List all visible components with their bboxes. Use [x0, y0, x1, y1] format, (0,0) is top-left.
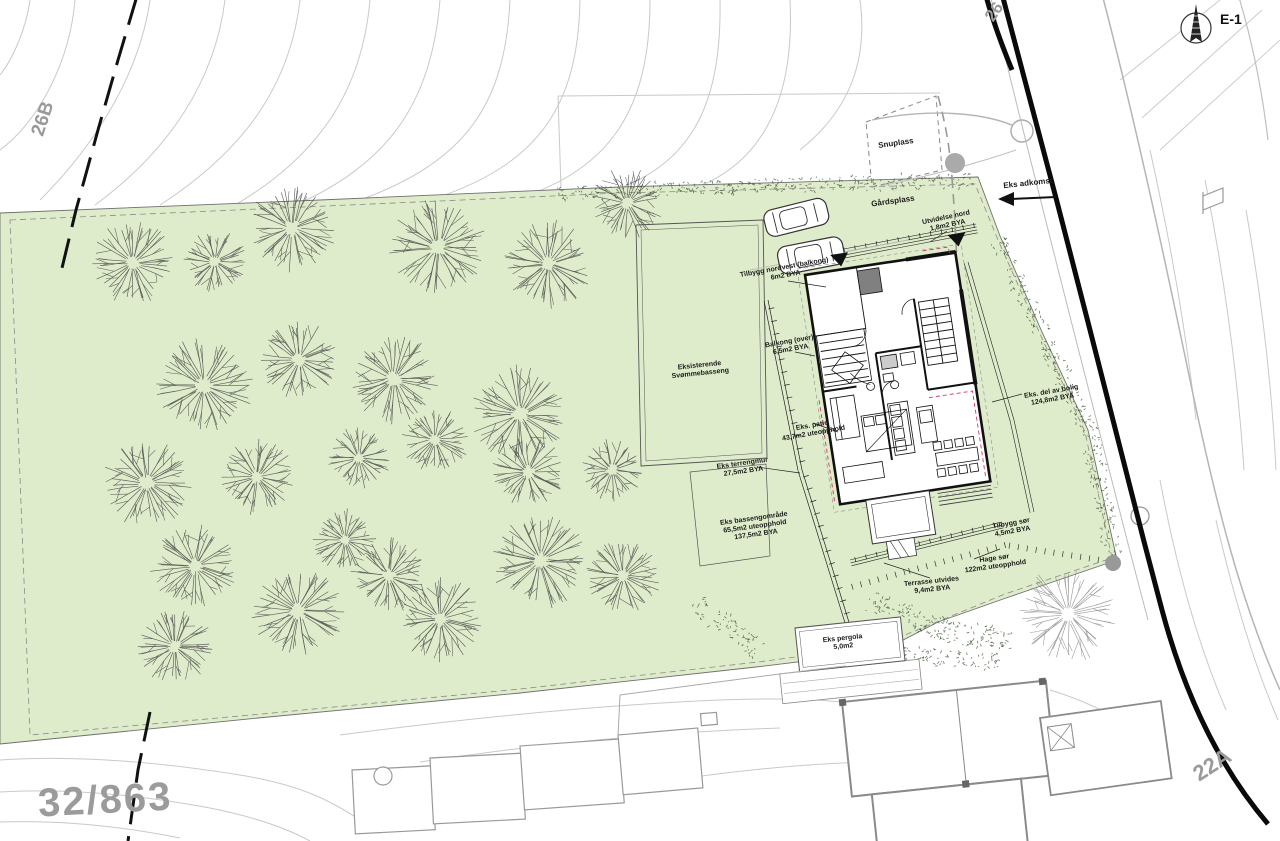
north-arrow-icon — [1181, 4, 1211, 43]
neighbour-building-large — [839, 678, 1063, 841]
neighbour-building-east — [1040, 701, 1172, 795]
adkomst-arrow — [998, 192, 1056, 206]
parcel-number-label: 32/863 — [37, 775, 174, 827]
site-plan-canvas: SnuplassGårdsplassEks adkomstUtvidelse n… — [0, 0, 1280, 841]
flag-marker — [1203, 188, 1223, 214]
site-plan-drawing — [0, 0, 1280, 841]
drawing-number-label: E-1 — [1220, 11, 1242, 27]
